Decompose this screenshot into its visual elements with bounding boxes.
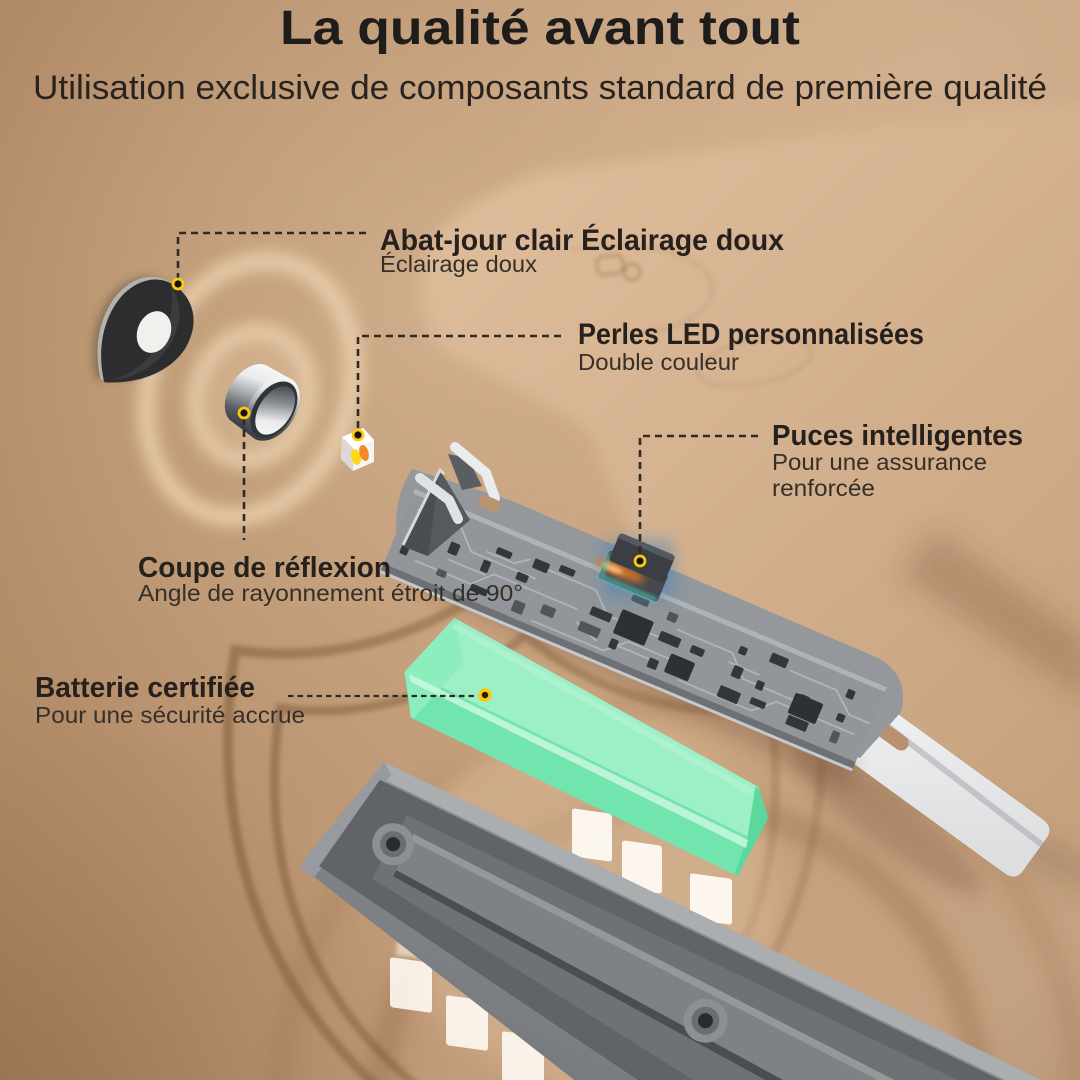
svg-text:renforcée: renforcée (772, 475, 875, 501)
svg-text:Pour une assurance: Pour une assurance (772, 449, 987, 475)
svg-text:Utilisation exclusive de compo: Utilisation exclusive de composants stan… (33, 69, 1047, 107)
svg-text:Double couleur: Double couleur (578, 349, 739, 375)
svg-text:Éclairage doux: Éclairage doux (380, 251, 538, 277)
svg-text:Pour une sécurité accrue: Pour une sécurité accrue (35, 702, 305, 728)
svg-text:Batterie certifiée: Batterie certifiée (35, 672, 255, 704)
svg-text:La qualité avant tout: La qualité avant tout (280, 2, 800, 55)
svg-text:Perles LED personnalisées: Perles LED personnalisées (578, 318, 924, 351)
svg-text:Angle de rayonnement étroit de: Angle de rayonnement étroit de 90° (138, 580, 523, 606)
svg-text:Puces intelligentes: Puces intelligentes (772, 420, 1023, 452)
